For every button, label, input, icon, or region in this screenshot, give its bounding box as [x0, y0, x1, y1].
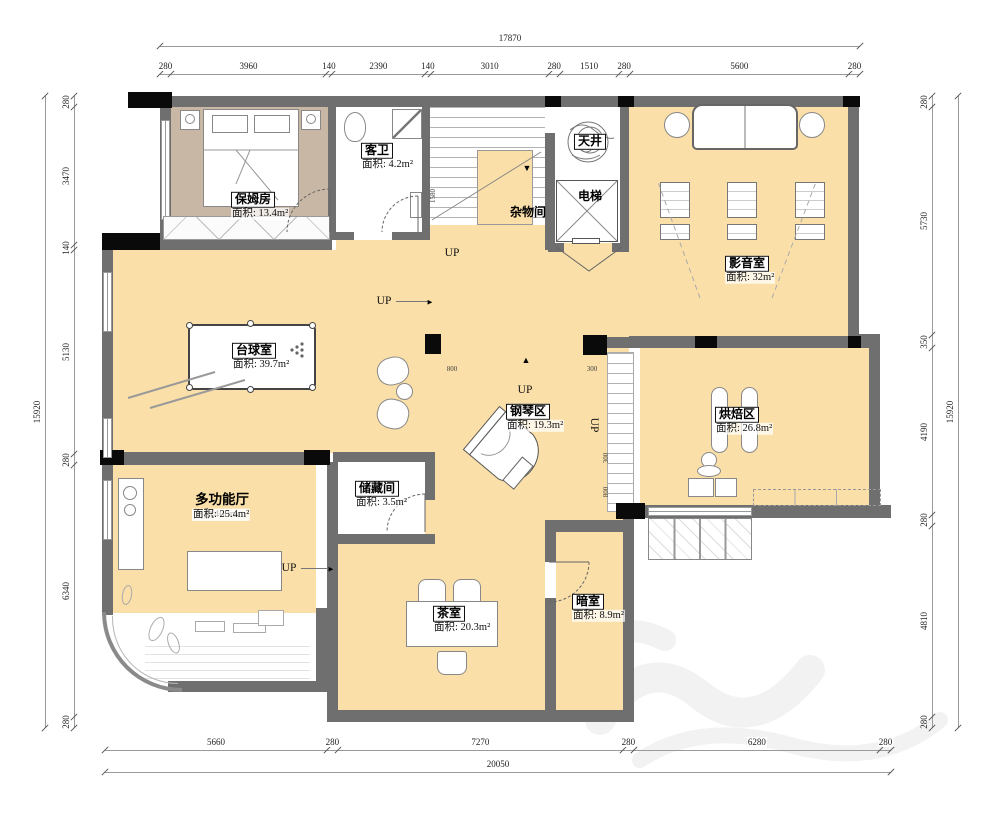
room-label-piano: 钢琴区面积: 19.3m²: [506, 402, 550, 420]
wall-multi-tea-joint: [316, 608, 338, 692]
dim-value-top-3: 2390: [368, 61, 388, 71]
dim-value-bottom-0: 5660: [206, 737, 226, 747]
toilet: [344, 112, 366, 142]
dim-line-right: [932, 96, 933, 728]
column-billiards-right: [304, 450, 330, 465]
window-billiards-1: [103, 272, 112, 332]
pillow-right: [254, 115, 290, 133]
room-area-tea: 面积: 20.3m²: [433, 622, 491, 634]
room-name-nanny: 保姆房: [231, 192, 275, 208]
wall-dark-left-a: [545, 532, 556, 562]
dim-total-left: 15920: [32, 400, 42, 425]
room-label-utility: 杂物间: [507, 203, 549, 221]
dim-value-top-2: 140: [321, 61, 337, 71]
dim-total-top: 17870: [498, 33, 523, 43]
recliner-2: [727, 182, 757, 218]
room-name-billiards: 台球室: [232, 343, 276, 359]
dim-tick: [887, 768, 894, 775]
room-name-guest-bath: 客卫: [361, 143, 393, 159]
pocket-1: [186, 322, 193, 329]
room-name-piano: 钢琴区: [506, 404, 550, 420]
dim-value-right-1: 5730: [919, 211, 929, 231]
column-baking-left: [616, 503, 645, 519]
room-area-media: 面积: 32m²: [725, 272, 775, 284]
room-label-elevator: 电梯: [575, 187, 605, 205]
dim-value-left-3: 5130: [61, 342, 71, 362]
dim-total-line-top: [160, 46, 860, 47]
up-arrowhead-icon: ►: [426, 297, 434, 306]
room-area-billiards: 面积: 39.7m²: [232, 359, 290, 371]
room-name-dark: 暗室: [572, 594, 604, 610]
wall-media-bottom: [629, 336, 849, 348]
up-label-1: UP: [377, 295, 392, 307]
dim-total-bottom: 20050: [486, 759, 511, 769]
tea-chair-2: [453, 579, 481, 603]
floor-hall-piano-area: [425, 225, 629, 521]
room-label-baking: 烘焙区面积: 26.8m²: [715, 405, 759, 423]
interior-dim-2: 300: [587, 365, 598, 373]
dim-tick: [70, 724, 77, 731]
interior-dim-4: 800: [602, 487, 610, 498]
wall-multi-bottom: [168, 681, 330, 692]
wall-stub-piano: [607, 337, 634, 348]
curved-bay-window: [112, 616, 178, 684]
pocket-5: [247, 386, 254, 393]
column-media-bottom: [695, 336, 717, 348]
dim-value-top-1: 3960: [239, 61, 259, 71]
dim-value-right-2: 350: [919, 334, 929, 350]
up-label-2: UP: [518, 384, 533, 396]
dim-value-top-5: 3010: [480, 61, 500, 71]
dim-total-right: 15920: [945, 400, 955, 425]
room-name-media: 影音室: [725, 256, 769, 272]
recliner-3: [795, 182, 825, 218]
room-label-media: 影音室面积: 32m²: [725, 254, 769, 272]
dim-value-left-2: 140: [61, 240, 71, 256]
window-nanny: [161, 120, 170, 220]
column-left-step: [102, 233, 160, 250]
room-name-elevator: 电梯: [575, 190, 605, 204]
dim-total-line-bottom: [105, 772, 891, 773]
wall-bath-bottom-a: [328, 232, 354, 240]
room-name-tea: 茶室: [433, 606, 465, 622]
lamp-right-icon: [306, 114, 316, 124]
dim-line-top: [160, 74, 860, 75]
wall-shaft-right: [620, 107, 629, 247]
dim-value-left-6: 280: [61, 715, 71, 731]
room-label-dark: 暗室面积: 8.9m²: [572, 592, 604, 610]
dim-value-right-0: 280: [919, 94, 929, 110]
column-top-left: [128, 92, 172, 108]
wall-storage-bottom: [327, 534, 435, 544]
dim-value-right-6: 280: [919, 715, 929, 731]
dim-value-bottom-3: 280: [621, 737, 637, 747]
pocket-2: [247, 320, 254, 327]
media-sofa: [692, 104, 798, 150]
dim-tick: [887, 746, 894, 753]
dim-value-left-4: 280: [61, 452, 71, 468]
up-label-4: UP: [282, 562, 297, 574]
floor-corridor: [336, 240, 428, 252]
column-hall-right: [583, 335, 607, 355]
interior-dim-3: 300: [602, 453, 610, 464]
pocket-6: [309, 384, 316, 391]
room-label-multi: 多功能厅下沉400mm面积: 25.4m²: [192, 491, 252, 509]
room-label-tea: 茶室面积: 20.3m²: [433, 604, 465, 622]
tea-chair-1: [418, 579, 446, 603]
dim-value-bottom-5: 280: [878, 737, 894, 747]
column-hall-left: [425, 334, 441, 354]
dim-value-top-0: 280: [158, 61, 174, 71]
room-name-storage: 储藏间: [355, 481, 399, 497]
recliner-1: [660, 182, 690, 218]
room-name-multi: 多功能厅: [192, 492, 252, 508]
dim-total-line-right: [958, 96, 959, 728]
wall-shaft-bottom-b: [612, 243, 629, 252]
window-multi: [103, 480, 112, 540]
cabinet-dashed-row: [753, 489, 881, 506]
column-top-right: [843, 96, 860, 107]
room-name-baking: 烘焙区: [715, 407, 759, 423]
ottoman-2: [727, 224, 757, 240]
speaker-left-icon: [664, 112, 690, 138]
room-area-guest-bath: 面积: 4.2m²: [361, 159, 414, 171]
dim-value-left-0: 280: [61, 94, 71, 110]
window-billiards-2: [103, 418, 112, 458]
tea-chair-3: [437, 651, 467, 675]
speaker-right-icon: [799, 112, 825, 138]
room-label-skylight: 天井: [574, 132, 606, 150]
side-table: [396, 383, 413, 400]
room-label-guest-bath: 客卫面积: 4.2m²: [361, 141, 393, 159]
washbasin: [410, 192, 422, 218]
column-step: [848, 336, 861, 348]
elevator-door: [572, 238, 600, 244]
sink-left: [688, 478, 714, 497]
dim-value-top-4: 140: [420, 61, 436, 71]
decor-1: [195, 621, 225, 632]
dim-line-bottom: [105, 750, 891, 751]
window-baking: [648, 507, 752, 516]
dim-value-top-7: 1510: [579, 61, 599, 71]
stair-arrow-icon: ▼: [523, 163, 532, 173]
pocket-3: [309, 322, 316, 329]
stair-arrow-icon: ▲: [522, 355, 531, 365]
ottoman-3: [795, 224, 825, 240]
wall-storage-right: [425, 452, 435, 500]
room-name-skylight: 天井: [574, 134, 606, 150]
dim-value-top-10: 280: [847, 61, 863, 71]
dim-value-right-5: 4810: [919, 611, 929, 631]
stairs-side: [607, 352, 634, 512]
sink-right: [715, 478, 737, 497]
dim-total-line-left: [45, 96, 46, 728]
dim-value-top-6: 280: [546, 61, 562, 71]
interior-dim-1: 800: [447, 365, 458, 373]
decor-3: [258, 610, 284, 626]
room-area-storage: 面积: 3.5m²: [355, 497, 408, 509]
pocket-4: [186, 384, 193, 391]
dim-tick: [856, 70, 863, 77]
column-top-1: [545, 96, 561, 107]
dim-tick: [41, 724, 48, 731]
wall-bath-right: [422, 107, 430, 234]
dim-value-left-1: 3470: [61, 166, 71, 186]
dim-value-left-5: 6340: [61, 581, 71, 601]
person-body: [697, 465, 721, 477]
dim-value-bottom-2: 7270: [470, 737, 490, 747]
room-area-multi: 面积: 25.4m²: [192, 509, 250, 521]
room-area-baking: 面积: 26.8m²: [715, 423, 773, 435]
wall-dark-left-b: [545, 598, 556, 712]
up-label-3: UP: [588, 418, 600, 433]
plate-1: [123, 486, 137, 500]
wall-billiards-bottom: [102, 452, 316, 465]
wall-media-right: [848, 96, 859, 341]
dim-value-bottom-4: 6280: [747, 737, 767, 747]
dim-tick: [928, 724, 935, 731]
room-area-piano: 面积: 19.3m²: [506, 420, 564, 432]
pillow-left: [212, 115, 248, 133]
dim-value-right-4: 280: [919, 513, 929, 529]
column-top-2: [618, 96, 634, 107]
wall-shaft-bottom-a: [548, 243, 564, 252]
dim-value-bottom-1: 280: [325, 737, 341, 747]
dim-value-top-8: 280: [616, 61, 632, 71]
shower: [392, 109, 422, 139]
dim-tick: [856, 42, 863, 49]
interior-dim-0: 1580: [429, 189, 437, 203]
dim-line-left: [74, 96, 75, 728]
up-arrowhead-icon: ►: [327, 564, 335, 573]
wall-shaft-left: [545, 133, 555, 250]
dim-tick: [954, 724, 961, 731]
plate-2: [124, 504, 136, 516]
ottoman-1: [660, 224, 690, 240]
room-area-nanny: 面积: 13.4m²: [231, 208, 289, 220]
wall-storage-top: [333, 452, 435, 462]
wall-nanny-bottom: [160, 240, 332, 250]
up-label-0: UP: [445, 247, 460, 259]
room-label-billiards: 台球室面积: 39.7m²: [232, 341, 276, 359]
room-name-utility: 杂物间: [507, 206, 549, 220]
room-label-storage: 储藏间面积: 3.5m²: [355, 479, 399, 497]
multi-table: [187, 551, 282, 591]
room-area-dark: 面积: 8.9m²: [572, 610, 625, 622]
wall-bottom: [327, 710, 634, 722]
lamp-left-icon: [185, 114, 195, 124]
bay-window: [648, 518, 752, 560]
dim-value-right-3: 4190: [919, 422, 929, 442]
up-leader-1: [396, 301, 430, 302]
room-label-nanny: 保姆房面积: 13.4m²: [231, 190, 275, 208]
floor-plan-canvas: 保姆房面积: 13.4m²客卫面积: 4.2m²天井电梯杂物间影音室面积: 32…: [0, 0, 1000, 833]
dim-value-top-9: 5600: [729, 61, 749, 71]
wall-dark-top: [545, 520, 634, 532]
